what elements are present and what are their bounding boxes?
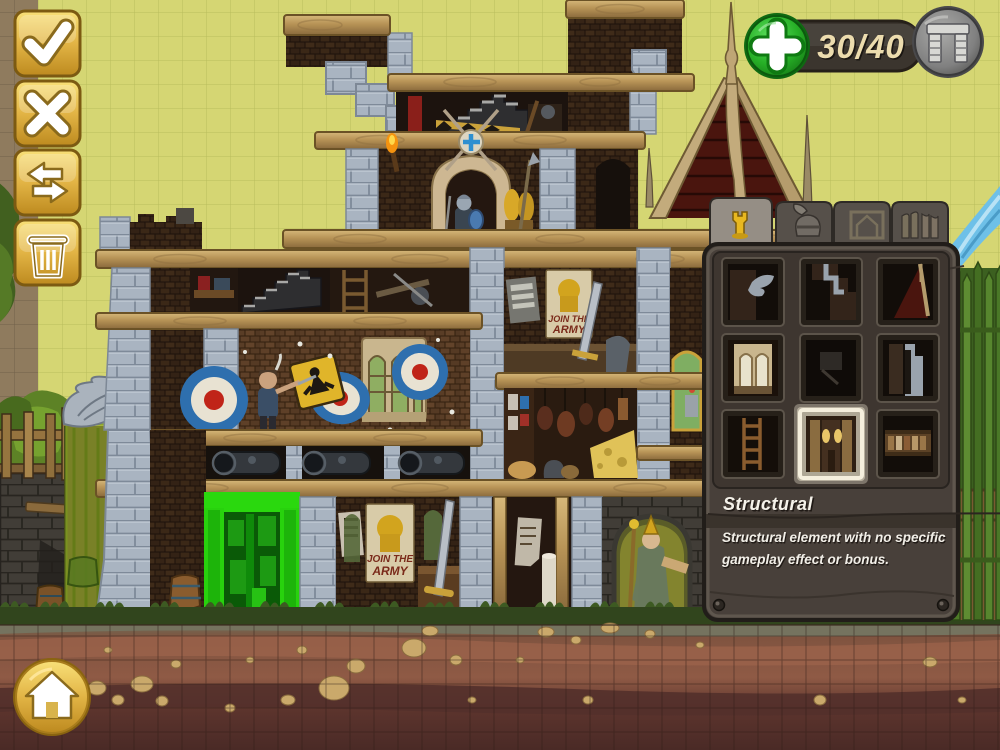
svg-text:Structural element with no spe: Structural element with no specific <box>722 530 946 545</box>
svg-text:ARMY: ARMY <box>371 564 408 578</box>
svg-text:ARMY: ARMY <box>552 324 587 336</box>
svg-text:Structural: Structural <box>723 494 814 514</box>
svg-text:JOIN THE: JOIN THE <box>548 314 591 324</box>
svg-text:30/40: 30/40 <box>817 28 905 65</box>
svg-text:gameplay effect or bonus.: gameplay effect or bonus. <box>721 552 889 567</box>
